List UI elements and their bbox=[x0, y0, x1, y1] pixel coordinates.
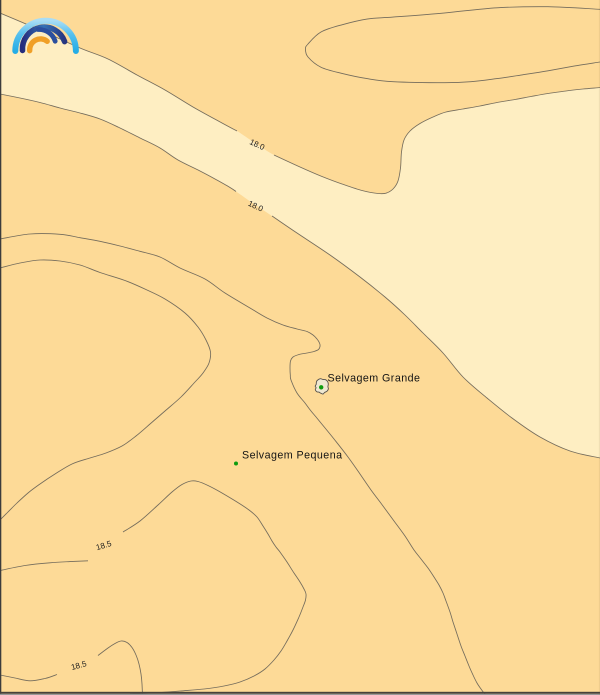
svg-text:Selvagem Pequena: Selvagem Pequena bbox=[242, 450, 343, 462]
svg-text:Selvagem Grande: Selvagem Grande bbox=[328, 373, 421, 385]
